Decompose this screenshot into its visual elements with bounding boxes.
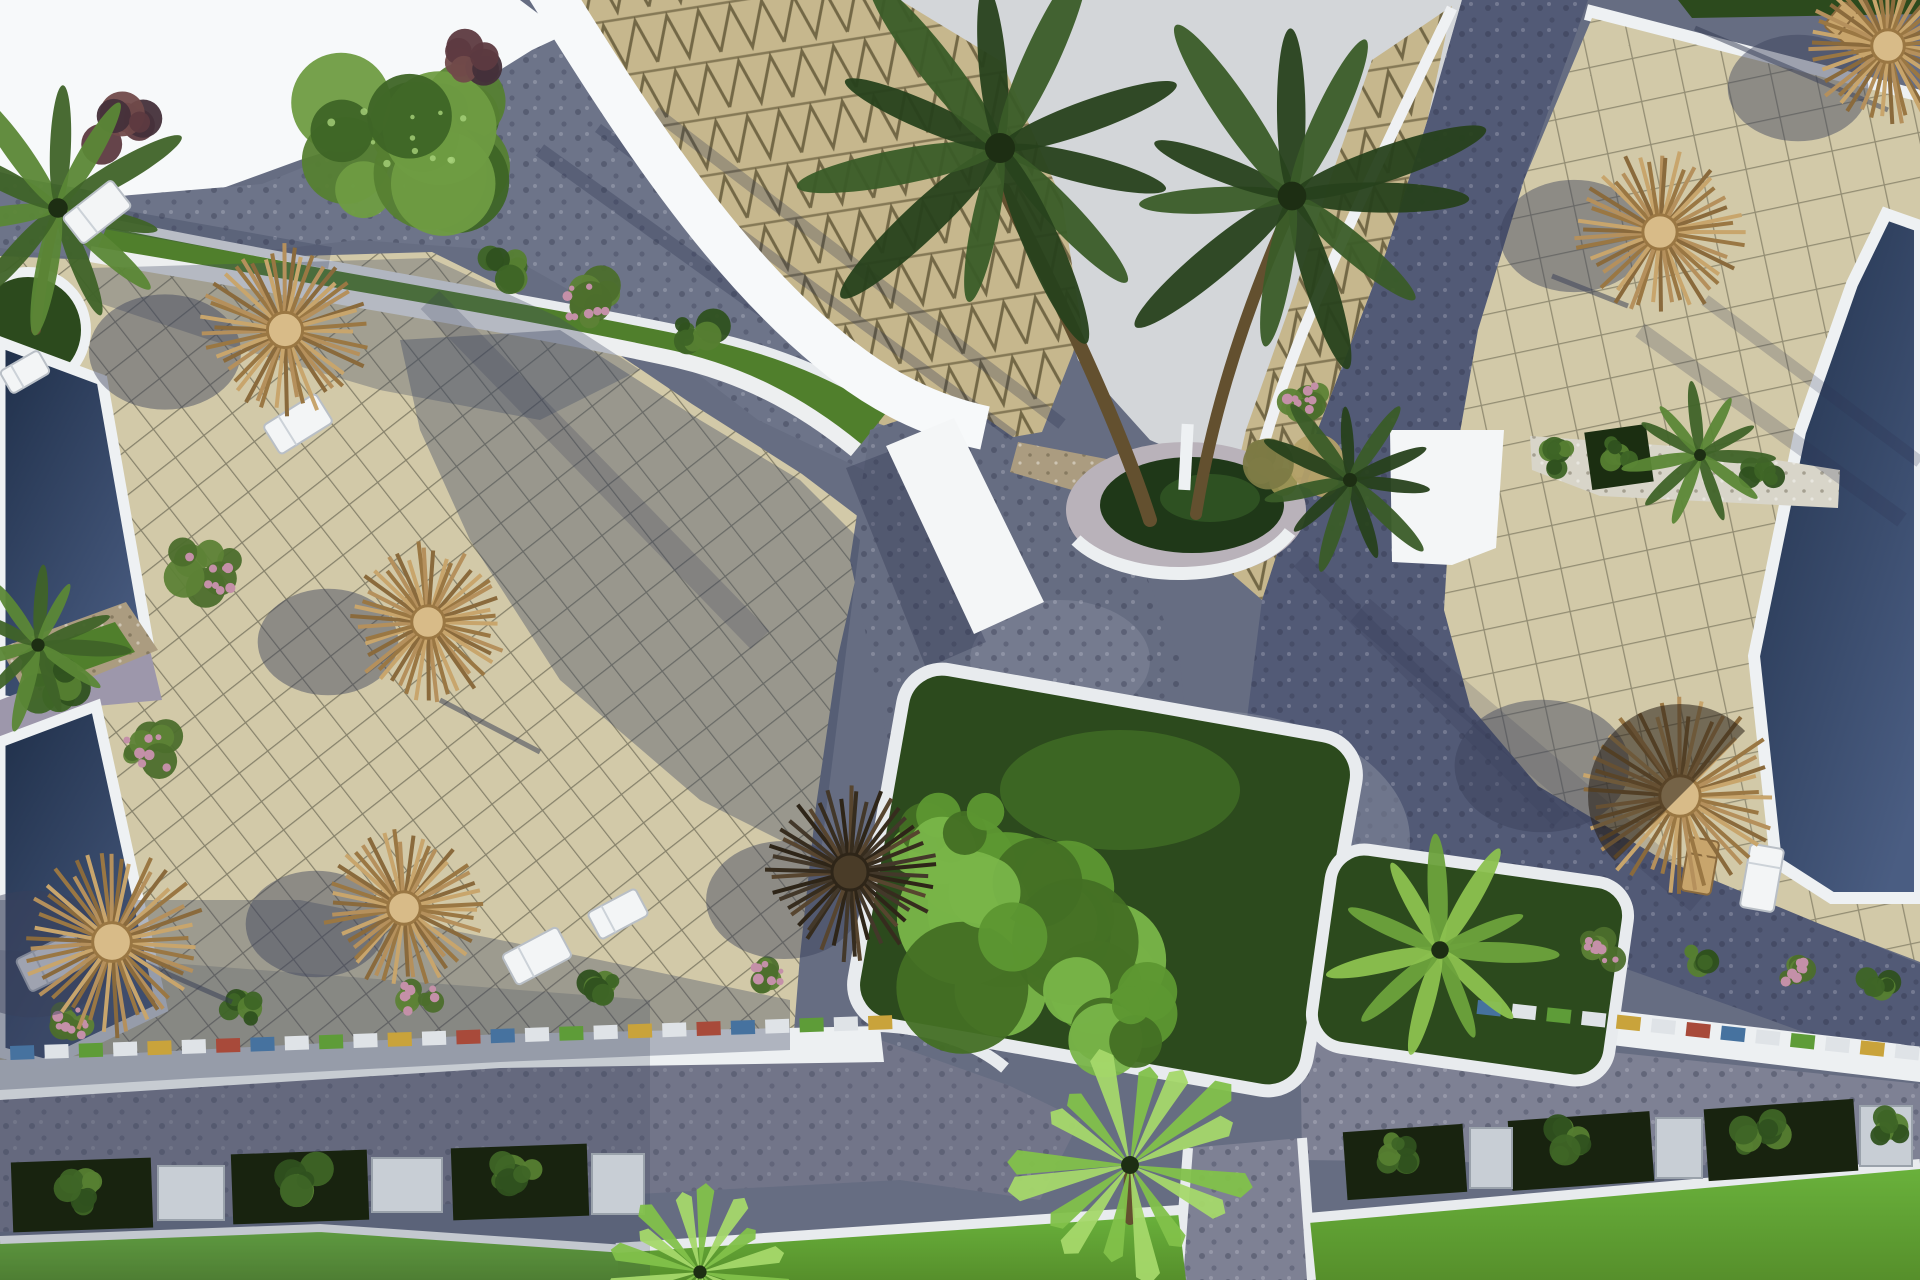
- flower-dot: [1282, 394, 1293, 405]
- mosaic-tile: [834, 1016, 858, 1031]
- mosaic-tile: [319, 1034, 343, 1049]
- palm-crown-center: [693, 1265, 706, 1278]
- leaf-highlight: [460, 115, 466, 121]
- mosaic-tile: [182, 1039, 206, 1054]
- palm-crown-center: [985, 133, 1015, 163]
- flower-dot: [562, 291, 572, 301]
- palm-crown-center: [1431, 941, 1449, 959]
- foliage-blob: [168, 537, 197, 566]
- mosaic-tile: [353, 1033, 377, 1048]
- flower-dot: [771, 979, 776, 984]
- flower-dot: [204, 580, 212, 588]
- mosaic-tile: [388, 1032, 412, 1047]
- flower-dot: [571, 313, 578, 320]
- foliage-blob: [1729, 1116, 1758, 1145]
- leaf-highlight: [371, 140, 375, 144]
- flower-dot: [209, 564, 217, 572]
- umbrella-cap: [267, 312, 302, 347]
- flower-dot: [146, 734, 153, 741]
- foliage-blob: [280, 1174, 313, 1207]
- flower-dot: [586, 284, 592, 290]
- center-planter-bright-grass: [1000, 730, 1240, 850]
- mosaic-tile: [10, 1045, 34, 1060]
- mosaic-tile: [799, 1018, 823, 1033]
- mosaic-tile: [731, 1020, 755, 1035]
- flower-dot: [1596, 944, 1606, 954]
- mosaic-tile: [285, 1036, 309, 1051]
- mosaic-tile: [1511, 1004, 1536, 1020]
- foliage-blob: [244, 1011, 258, 1025]
- palm-crown-center: [1121, 1156, 1139, 1174]
- foliage-blob: [1547, 460, 1562, 475]
- flower-dot: [1798, 958, 1808, 968]
- flower-dot: [584, 309, 594, 319]
- flower-dot: [403, 1006, 413, 1016]
- foliage-blob: [54, 1175, 81, 1202]
- umbrella-shadow: [89, 294, 241, 409]
- foliage-blob: [1548, 442, 1561, 455]
- leaf-highlight: [438, 111, 443, 116]
- foliage-blob: [1697, 955, 1712, 970]
- mosaic-tile: [696, 1021, 720, 1036]
- mosaic-tile: [216, 1038, 240, 1053]
- flower-dot: [1791, 972, 1801, 982]
- foliage-blob: [513, 1165, 531, 1183]
- mosaic-tile: [250, 1037, 274, 1052]
- flower-dot: [1797, 966, 1802, 971]
- flower-dot: [762, 961, 769, 968]
- mosaic-tile: [1546, 1007, 1571, 1023]
- render-canvas: [0, 0, 1920, 1280]
- flower-dot: [144, 750, 154, 760]
- mosaic-tile: [1755, 1029, 1780, 1045]
- flower-dot: [1303, 386, 1313, 396]
- mosaic-tile: [1790, 1033, 1815, 1049]
- mosaic-tile: [1686, 1022, 1711, 1038]
- mosaic-tile: [662, 1022, 686, 1037]
- palm-crown-center: [1343, 473, 1357, 487]
- foliage-blob: [418, 993, 431, 1006]
- flower-dot: [123, 737, 130, 744]
- flower-dot: [1612, 956, 1618, 962]
- mosaic-tile: [525, 1027, 549, 1042]
- flower-dot: [75, 1007, 80, 1012]
- foliage-blob: [79, 1188, 97, 1206]
- flower-dot: [225, 583, 235, 593]
- flower-dot: [405, 985, 416, 996]
- mosaic-tile: [456, 1030, 480, 1045]
- flower-dot: [156, 734, 162, 740]
- foliage-blob: [1684, 945, 1698, 959]
- mosaic-tile: [1895, 1044, 1920, 1060]
- foliage-blob: [1391, 1137, 1404, 1150]
- foliage-blob: [678, 330, 694, 346]
- curb-post: [158, 1166, 224, 1220]
- thatch-spoke: [285, 340, 287, 417]
- round-planter-grass-light: [1160, 474, 1260, 522]
- umbrella-cap: [1643, 215, 1677, 249]
- foliage-blob: [129, 112, 150, 133]
- mosaic-tile: [44, 1044, 68, 1059]
- mosaic-tile: [765, 1019, 789, 1034]
- foliage-blob: [693, 322, 722, 351]
- mosaic-tile: [868, 1015, 892, 1030]
- foliage-blob: [675, 317, 690, 332]
- curb-post: [1470, 1128, 1512, 1188]
- umbrella-cap: [93, 923, 132, 962]
- curb-post: [592, 1154, 644, 1214]
- foliage-blob: [470, 42, 498, 70]
- flower-dot: [778, 969, 783, 974]
- flower-dot: [429, 985, 436, 992]
- mosaic-tile: [113, 1042, 137, 1057]
- flower-dot: [776, 978, 783, 985]
- curb-post: [1656, 1118, 1702, 1178]
- flower-dot: [1305, 405, 1314, 414]
- palm-crown-center: [1694, 449, 1706, 461]
- leaf-highlight: [412, 148, 418, 154]
- flower-dot: [753, 974, 764, 985]
- flower-dot: [754, 963, 763, 972]
- mosaic-tile: [147, 1040, 171, 1055]
- leaf-highlight: [430, 155, 436, 161]
- flower-dot: [162, 763, 170, 771]
- flower-dot: [61, 1022, 71, 1032]
- mosaic-tile: [1825, 1037, 1850, 1053]
- flower-dot: [138, 759, 146, 767]
- foliage-blob: [1879, 1115, 1898, 1134]
- foliage-blob: [1865, 977, 1885, 997]
- foliage-blob: [495, 264, 525, 294]
- foliage-blob: [592, 984, 614, 1006]
- mosaic-tile: [422, 1031, 446, 1046]
- palm-crown-center: [31, 638, 44, 651]
- flower-dot: [601, 307, 609, 315]
- flower-dot: [1304, 397, 1309, 402]
- umbrella-cap: [1872, 30, 1905, 63]
- mosaic-tile: [559, 1026, 583, 1041]
- foliage-blob: [1758, 1119, 1778, 1139]
- flower-dot: [185, 553, 194, 562]
- umbrella-cap: [832, 854, 868, 890]
- leaf-highlight: [448, 157, 455, 164]
- mosaic-tile: [1581, 1011, 1606, 1027]
- mosaic-tile: [490, 1028, 514, 1043]
- foliage-blob: [967, 793, 1005, 831]
- foliage-blob: [978, 902, 1047, 971]
- flower-dot: [1584, 943, 1591, 950]
- mosaic-tile: [1860, 1040, 1885, 1056]
- flower-dot: [223, 563, 233, 573]
- thatch-spoke: [428, 631, 429, 701]
- flower-dot: [593, 307, 602, 316]
- thatch-spoke: [437, 622, 498, 623]
- foliage-blob: [367, 74, 452, 159]
- flower-dot: [212, 582, 219, 589]
- leaf-highlight: [383, 160, 390, 167]
- mosaic-tile: [1651, 1018, 1676, 1034]
- umbrella-cap: [388, 892, 421, 925]
- mosaic-tile: [79, 1043, 103, 1058]
- flower-dot: [1602, 958, 1607, 963]
- thatch-spoke: [765, 870, 840, 872]
- flower-dot: [77, 1030, 86, 1039]
- thatch-spoke: [1660, 241, 1661, 311]
- foliage-blob: [141, 743, 177, 779]
- foliage-blob: [244, 991, 263, 1010]
- flower-dot: [569, 286, 574, 291]
- foliage-blob: [1608, 440, 1622, 454]
- flower-dot: [1781, 976, 1791, 986]
- curb-post: [372, 1158, 442, 1212]
- leaf-highlight: [360, 108, 367, 115]
- mosaic-tile: [593, 1025, 617, 1040]
- umbrella-cap: [412, 606, 445, 639]
- mosaic-tile: [1616, 1015, 1641, 1031]
- thatch-spoke: [284, 243, 285, 320]
- leaf-highlight: [410, 115, 414, 119]
- leaf-highlight: [410, 135, 415, 140]
- foliage-blob: [1549, 1134, 1580, 1165]
- flower-dot: [430, 993, 440, 1003]
- aerial-resort-render: [0, 0, 1920, 1280]
- mosaic-tile: [628, 1024, 652, 1039]
- mosaic-tile: [1720, 1026, 1745, 1042]
- flower-dot: [134, 748, 145, 759]
- palm-crown-center: [1278, 182, 1307, 211]
- leaf-highlight: [327, 118, 335, 126]
- foliage-blob: [1112, 986, 1150, 1024]
